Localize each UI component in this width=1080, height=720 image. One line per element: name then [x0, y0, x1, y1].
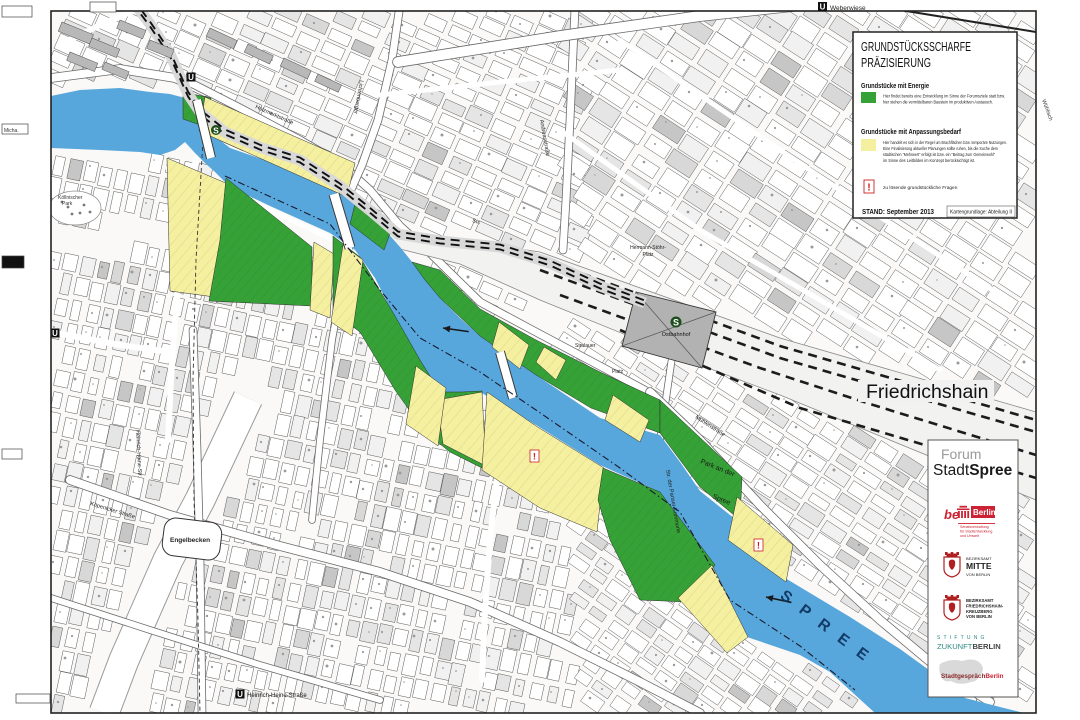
svg-text:U: U [237, 690, 243, 699]
svg-text:zu lösende grundstückliche Fra: zu lösende grundstückliche Fragen [883, 185, 958, 191]
svg-text:Hier handelt es sich in der Re: Hier handelt es sich in der Regel um Bra… [883, 140, 1007, 145]
svg-text:Berlin: Berlin [973, 508, 996, 517]
svg-text:Stralauer: Stralauer [575, 343, 596, 349]
svg-text:VON BERLIN: VON BERLIN [966, 572, 990, 577]
svg-text:BEZIRKSAMT: BEZIRKSAMT [966, 598, 994, 603]
svg-text:STAND: September 2013: STAND: September 2013 [862, 207, 934, 216]
svg-text:STIFTUNG: STIFTUNG [937, 635, 988, 641]
svg-text:Platz: Platz [642, 252, 654, 258]
svg-text:Ostbahnhof: Ostbahnhof [662, 332, 691, 338]
svg-text:Platz: Platz [612, 369, 624, 375]
svg-text:ZUKUNFTBERLIN: ZUKUNFTBERLIN [937, 642, 1001, 651]
svg-text:Heinrich-Heine-Straße: Heinrich-Heine-Straße [247, 693, 307, 699]
svg-text:Park: Park [62, 201, 73, 207]
svg-text:städtischen “Mehrwert” erfolgt: städtischen “Mehrwert” erfolgt ist bzw. … [883, 152, 995, 157]
svg-text:KREUZBERG: KREUZBERG [966, 609, 993, 614]
svg-text:und Umwelt: und Umwelt [960, 534, 979, 538]
svg-text:S: S [213, 125, 219, 135]
svg-text:Friedrichshain: Friedrichshain [866, 381, 988, 403]
svg-text:Weberwiese: Weberwiese [830, 5, 866, 12]
svg-text:S: S [673, 318, 679, 328]
svg-text:StadtSpree: StadtSpree [933, 462, 1013, 479]
svg-text:FRIEDRICHSHAIN-: FRIEDRICHSHAIN- [966, 603, 1004, 608]
svg-text:Micha.: Micha. [4, 128, 19, 134]
svg-text:U: U [52, 329, 58, 338]
svg-text:!: ! [757, 541, 760, 552]
svg-text:hier stehen die vermittelbaren: hier stehen die vermittelbaren Baustein … [883, 100, 993, 105]
svg-text:Eine Finalisierung aktueller P: Eine Finalisierung aktueller Planungen s… [883, 146, 998, 151]
svg-text:Hier findet bereits eine Entwi: Hier findet bereits eine Entwicklung im … [883, 94, 1005, 99]
svg-text:StadtgesprächBerlin: StadtgesprächBerlin [941, 673, 1004, 680]
svg-text:Engelbecken: Engelbecken [170, 537, 210, 544]
svg-text:be: be [944, 507, 959, 522]
svg-text:U: U [820, 3, 826, 12]
svg-text:GRUNDSTÜCKSSCHARFE: GRUNDSTÜCKSSCHARFE [861, 39, 971, 54]
svg-text:Forum: Forum [941, 446, 981, 462]
svg-text:Senatsverwaltung: Senatsverwaltung [960, 525, 989, 529]
svg-text:!: ! [867, 182, 871, 194]
svg-text:Kartengrundlage: Abteilung II: Kartengrundlage: Abteilung II [950, 210, 1012, 216]
svg-text:Grundstücke mit Energie: Grundstücke mit Energie [861, 83, 929, 90]
svg-text:!: ! [533, 452, 536, 463]
svg-text:VON BERLIN: VON BERLIN [966, 614, 992, 619]
svg-text:U: U [188, 73, 194, 82]
svg-text:Grundstücke mit Anpassungsbeda: Grundstücke mit Anpassungsbedarf [861, 129, 962, 136]
svg-text:für Stadtentwicklung: für Stadtentwicklung [960, 530, 992, 534]
svg-text:Hermann-Stöhr-: Hermann-Stöhr- [630, 245, 666, 251]
svg-text:MITTE: MITTE [966, 561, 992, 571]
svg-text:im Sinne des Leitbildes im Kon: im Sinne des Leitbildes im Konzept berüc… [883, 158, 975, 163]
svg-text:PRÄZISIERUNG: PRÄZISIERUNG [861, 55, 931, 70]
